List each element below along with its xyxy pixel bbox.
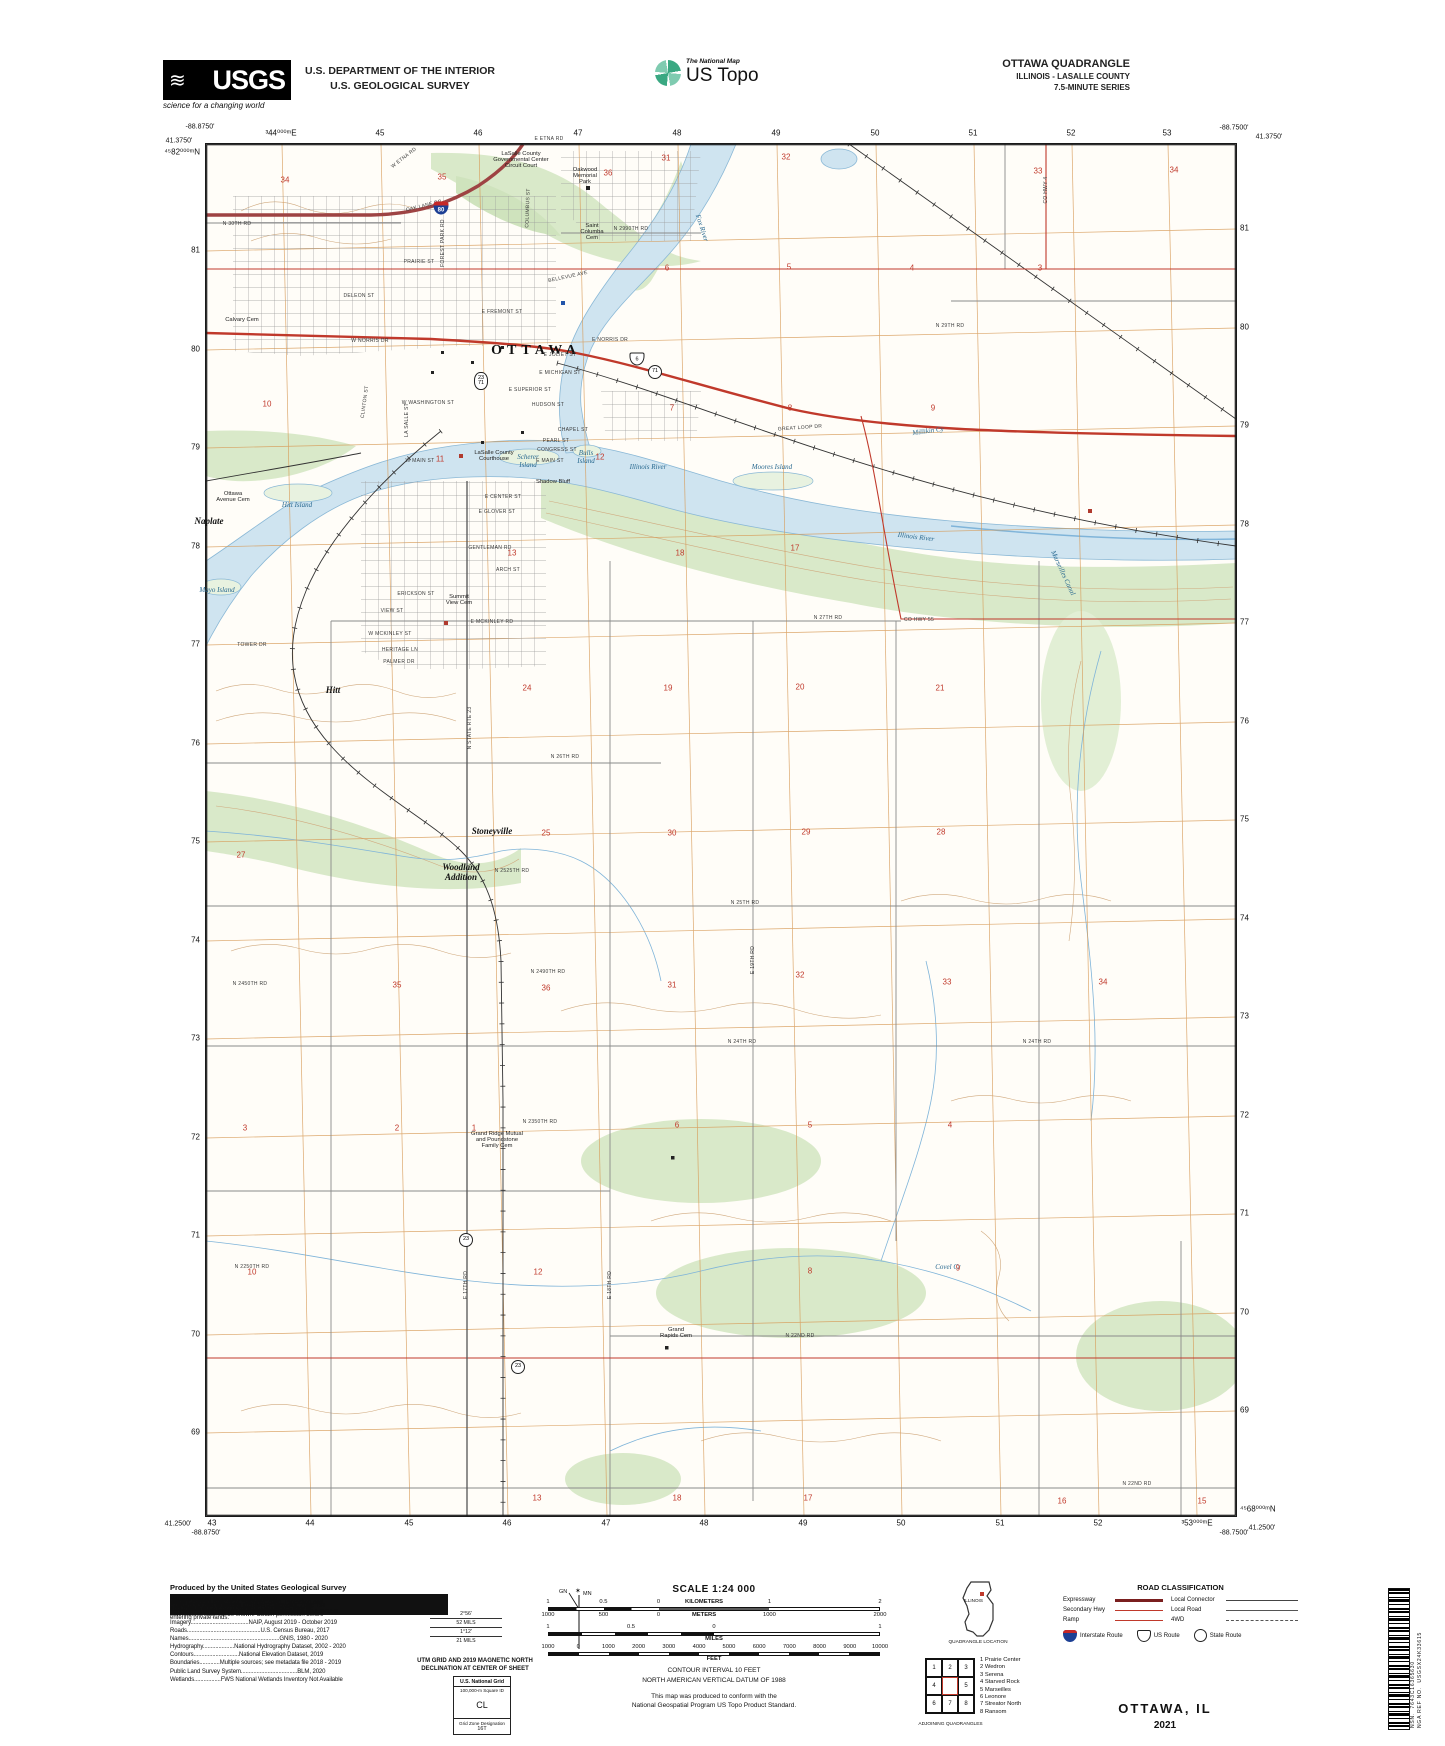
usgs-tagline: science for a changing world bbox=[163, 101, 313, 110]
illinois-outline: ILLINOIS bbox=[956, 1580, 1000, 1638]
feet-label: FEET bbox=[548, 1656, 880, 1664]
map-canvas[interactable] bbox=[205, 143, 1237, 1517]
adjoining-cell: 8 bbox=[958, 1695, 974, 1713]
credits-source-line: Imagery.................................… bbox=[170, 1619, 448, 1627]
scale-title: SCALE 1:24 000 bbox=[548, 1584, 880, 1595]
declination-value: 1°12' bbox=[430, 1627, 502, 1636]
grid-easting-top: 48 bbox=[673, 129, 682, 138]
adjoining-quadrangle-grid: 12345678 bbox=[925, 1658, 975, 1714]
grid-easting-bottom: 51 bbox=[996, 1519, 1005, 1528]
grid-northing-left: 73 bbox=[191, 1034, 200, 1043]
grid-easting-top: 47 bbox=[574, 129, 583, 138]
credits-source-line: Hydrography....................National … bbox=[170, 1643, 448, 1651]
scale-tick: 1000 bbox=[602, 1644, 615, 1650]
declination-value: 21 MILS bbox=[430, 1636, 502, 1645]
grid-northing-left: ⁴⁵82⁰⁰⁰ᵐN bbox=[164, 148, 200, 157]
declination-table: 2°56'52 MILS1°12'21 MILS bbox=[430, 1610, 502, 1645]
quadrangle-location: ILLINOIS QUADRANGLE LOCATION bbox=[933, 1580, 1023, 1645]
grid-easting-top: 52 bbox=[1067, 129, 1076, 138]
scale-tick: 0.5 bbox=[599, 1599, 607, 1605]
grid-northing-left: 79 bbox=[191, 443, 200, 452]
sheet-title-block: OTTAWA, IL 2021 bbox=[1090, 1701, 1240, 1731]
scale-tick: 0.5 bbox=[627, 1624, 635, 1630]
scale-tick: 6000 bbox=[753, 1644, 766, 1650]
ustopo-label: US Topo bbox=[686, 65, 759, 87]
scale-tick: 1000 bbox=[542, 1644, 555, 1650]
adjoining-cell: 3 bbox=[958, 1659, 974, 1677]
corner-coordinate: 41.2500' bbox=[165, 1521, 192, 1528]
grid-northing-right: 75 bbox=[1240, 815, 1249, 824]
barcode-icon bbox=[1388, 1588, 1410, 1730]
local-connector-line-sample bbox=[1226, 1600, 1298, 1601]
usng-square-id: CL bbox=[454, 1694, 510, 1718]
ustopo-icon bbox=[655, 60, 681, 86]
corner-coordinate: -88.8750' bbox=[186, 124, 215, 131]
legend-us-route: US Route bbox=[1154, 1633, 1180, 1639]
quad-location-marker bbox=[980, 1592, 984, 1596]
scale-tick: 1 bbox=[546, 1624, 549, 1630]
adjoining-name: 4 Starved Rock bbox=[980, 1679, 1070, 1686]
conformance-line1: This map was produced to conform with th… bbox=[548, 1692, 880, 1701]
scale-unit-label: METERS bbox=[692, 1612, 716, 1618]
credits-source-line: Wetlands.................FWS National We… bbox=[170, 1676, 448, 1684]
adjoining-cell: 4 bbox=[926, 1677, 942, 1695]
declination-caption-line2: DECLINATION AT CENTER OF SHEET bbox=[375, 1665, 575, 1673]
ramp-line-sample bbox=[1115, 1620, 1163, 1621]
scale-tick: 2 bbox=[878, 1599, 881, 1605]
grid-northing-left: 69 bbox=[191, 1428, 200, 1437]
grid-easting-bottom: 48 bbox=[700, 1519, 709, 1528]
nsn-text: NSN. 7643C16365630 bbox=[1410, 1588, 1416, 1728]
grid-northing-left: 72 bbox=[191, 1133, 200, 1142]
grid-northing-right: 72 bbox=[1240, 1111, 1249, 1120]
grid-northing-right: 81 bbox=[1240, 224, 1249, 233]
sheet-name: OTTAWA, IL bbox=[1090, 1701, 1240, 1716]
scale-tick: 1000 bbox=[542, 1612, 555, 1618]
scale-tick: 500 bbox=[599, 1612, 609, 1618]
usng-box: U.S. National Grid 100,000-m Square ID C… bbox=[453, 1676, 511, 1735]
scale-tick: 4000 bbox=[693, 1644, 706, 1650]
adjoining-name: 7 Streator North bbox=[980, 1701, 1070, 1708]
scale-tick: 1 bbox=[546, 1599, 549, 1605]
scale-tick: 9000 bbox=[843, 1644, 856, 1650]
local-road-line-sample bbox=[1226, 1610, 1298, 1611]
sheet-year: 2021 bbox=[1090, 1720, 1240, 1731]
contour-note: CONTOUR INTERVAL 10 FEET NORTH AMERICAN … bbox=[548, 1666, 880, 1686]
adjoining-name: 1 Prairie Center bbox=[980, 1657, 1070, 1664]
scale-tick: 0 bbox=[577, 1644, 580, 1650]
adjoining-cell: 6 bbox=[926, 1695, 942, 1713]
credits-source-line: Roads...................................… bbox=[170, 1627, 448, 1635]
scale-tick: 5000 bbox=[722, 1644, 735, 1650]
grid-northing-right: 77 bbox=[1240, 618, 1249, 627]
scale-tick: 0 bbox=[657, 1599, 660, 1605]
grid-northing-left: 80 bbox=[191, 345, 200, 354]
quadrangle-location-caption: QUADRANGLE LOCATION bbox=[933, 1640, 1023, 1645]
usng-square-id-label: 100,000-m Square ID bbox=[454, 1687, 510, 1694]
ustopo-logo: The National Map US Topo bbox=[655, 58, 759, 87]
grid-easting-bottom: 50 bbox=[897, 1519, 906, 1528]
credits-title: Produced by the United States Geological… bbox=[170, 1583, 448, 1592]
grid-easting-bottom: 46 bbox=[503, 1519, 512, 1528]
secondary-hwy-line-sample bbox=[1115, 1610, 1163, 1611]
grid-easting-bottom: 47 bbox=[602, 1519, 611, 1528]
grid-easting-top: 50 bbox=[871, 129, 880, 138]
vertical-datum: NORTH AMERICAN VERTICAL DATUM OF 1988 bbox=[548, 1676, 880, 1686]
map-label: E ETNA RD bbox=[534, 136, 563, 142]
grid-northing-right: 76 bbox=[1240, 717, 1249, 726]
km-ticks: 10.5012KILOMETERS bbox=[548, 1599, 880, 1607]
scale-block: SCALE 1:24 000 10.5012KILOMETERS 1000500… bbox=[548, 1584, 880, 1664]
grid-northing-right: 73 bbox=[1240, 1012, 1249, 1021]
legend-local-connector: Local Connector bbox=[1171, 1597, 1226, 1603]
quadrangle-title-block: OTTAWA QUADRANGLE ILLINOIS - LASALLE COU… bbox=[830, 58, 1130, 92]
corner-coordinate: -88.7500' bbox=[1220, 1530, 1249, 1537]
fourwd-line-sample bbox=[1226, 1620, 1298, 1621]
grid-northing-right: 80 bbox=[1240, 323, 1249, 332]
legend-local-road: Local Road bbox=[1171, 1607, 1226, 1613]
grid-easting-bottom: 45 bbox=[405, 1519, 414, 1528]
grid-easting-top: 49 bbox=[772, 129, 781, 138]
grid-northing-right: 69 bbox=[1240, 1406, 1249, 1415]
grid-northing-right: 79 bbox=[1240, 421, 1249, 430]
scale-tick: 0 bbox=[657, 1612, 660, 1618]
grid-easting-top: 53 bbox=[1163, 129, 1172, 138]
quadrangle-name: OTTAWA QUADRANGLE bbox=[830, 58, 1130, 70]
illinois-label: ILLINOIS bbox=[964, 1598, 983, 1603]
adjoining-name: 5 Marseilles bbox=[980, 1687, 1070, 1694]
adjoining-name: 2 Wedron bbox=[980, 1664, 1070, 1671]
legend-state-route: State Route bbox=[1210, 1633, 1242, 1639]
adjoining-cell: 7 bbox=[942, 1695, 958, 1713]
grid-northing-right: 78 bbox=[1240, 520, 1249, 529]
department-block: U.S. DEPARTMENT OF THE INTERIOR U.S. GEO… bbox=[255, 64, 545, 93]
road-classification: ROAD CLASSIFICATION Expressway Local Con… bbox=[1063, 1583, 1298, 1642]
interstate-shield-icon bbox=[1063, 1630, 1077, 1642]
grid-easting-bottom: 43 bbox=[208, 1519, 217, 1528]
quadrangle-state-county: ILLINOIS - LASALLE COUNTY bbox=[830, 72, 1130, 81]
declination-caption: UTM GRID AND 2019 MAGNETIC NORTH DECLINA… bbox=[375, 1657, 575, 1674]
adjoining-name: 8 Ransom bbox=[980, 1709, 1070, 1716]
adjoining-caption: ADJOINING QUADRANGLES bbox=[893, 1722, 1008, 1727]
grid-northing-left: 76 bbox=[191, 739, 200, 748]
corner-coordinate: 41.3750' bbox=[166, 138, 193, 145]
grid-easting-bottom: 52 bbox=[1094, 1519, 1103, 1528]
scale-unit-label: KILOMETERS bbox=[685, 1599, 723, 1605]
scale-tick: 10000 bbox=[872, 1644, 888, 1650]
grid-northing-left: 78 bbox=[191, 542, 200, 551]
credits-source-line: Names...................................… bbox=[170, 1635, 448, 1643]
corner-coordinate: -88.7500' bbox=[1220, 125, 1249, 132]
grid-northing-left: 74 bbox=[191, 936, 200, 945]
grid-northing-right: 71 bbox=[1240, 1209, 1249, 1218]
grid-easting-bottom: 44 bbox=[306, 1519, 315, 1528]
quadrangle-series: 7.5-MINUTE SERIES bbox=[830, 83, 1130, 92]
road-classification-title: ROAD CLASSIFICATION bbox=[1063, 1583, 1298, 1592]
contour-interval: CONTOUR INTERVAL 10 FEET bbox=[548, 1666, 880, 1676]
grid-easting-bottom: 49 bbox=[799, 1519, 808, 1528]
department-line1: U.S. DEPARTMENT OF THE INTERIOR bbox=[255, 64, 545, 79]
legend-interstate-route: Interstate Route bbox=[1080, 1633, 1123, 1639]
scale-tick: 2000 bbox=[632, 1644, 645, 1650]
adjoining-name: 3 Serena bbox=[980, 1672, 1070, 1679]
declination-value: 2°56' bbox=[430, 1610, 502, 1618]
adjoining-name: 6 Leonore bbox=[980, 1694, 1070, 1701]
nga-ref-text: NGA REF NO. USGSX24K33615 bbox=[1417, 1588, 1423, 1728]
scale-tick: 2000 bbox=[874, 1612, 887, 1618]
us-topo-map-sheet: ≋ USGS science for a changing world U.S.… bbox=[0, 0, 1445, 1746]
us-route-shield-icon bbox=[1137, 1630, 1151, 1642]
grid-northing-left: 75 bbox=[191, 837, 200, 846]
state-route-shield-icon bbox=[1194, 1629, 1207, 1642]
national-map-label: The National Map bbox=[686, 58, 759, 65]
usng-zone: 16T bbox=[454, 1726, 510, 1734]
scale-tick: 0 bbox=[712, 1624, 715, 1630]
adjoining-cell: 1 bbox=[926, 1659, 942, 1677]
corner-coordinate: 41.2500' bbox=[1249, 1525, 1276, 1532]
scale-tick: 1 bbox=[878, 1624, 881, 1630]
department-line2: U.S. GEOLOGICAL SURVEY bbox=[255, 79, 545, 94]
adjoining-cell: 2 bbox=[942, 1659, 958, 1677]
corner-coordinate: 41.3750' bbox=[1256, 134, 1283, 141]
adjoining-quadrangle-names: 1 Prairie Center2 Wedron3 Serena4 Starve… bbox=[980, 1657, 1070, 1716]
grid-easting-top: ³44⁰⁰⁰ᵐE bbox=[265, 129, 296, 138]
feet-ticks: 1000010002000300040005000600070008000900… bbox=[548, 1644, 880, 1652]
grid-easting-bottom: ³53⁰⁰⁰ᵐE bbox=[1181, 1519, 1212, 1528]
usng-title: U.S. National Grid bbox=[454, 1677, 510, 1687]
declination-caption-line1: UTM GRID AND 2019 MAGNETIC NORTH bbox=[375, 1657, 575, 1665]
expressway-line-sample bbox=[1115, 1599, 1163, 1602]
meters-ticks: 1000500010002000METERS bbox=[548, 1612, 880, 1620]
usng-zone-label: Grid Zone Designation bbox=[454, 1718, 510, 1726]
grid-northing-left: 70 bbox=[191, 1330, 200, 1339]
corner-coordinate: -88.8750' bbox=[192, 1530, 221, 1537]
grid-easting-top: 46 bbox=[474, 129, 483, 138]
miles-ticks: 10.501 bbox=[548, 1624, 880, 1632]
grid-easting-top: 45 bbox=[376, 129, 385, 138]
grid-northing-left: 81 bbox=[191, 246, 200, 255]
legend-expressway: Expressway bbox=[1063, 1597, 1115, 1603]
scale-tick: 1000 bbox=[763, 1612, 776, 1618]
km-meters-bar bbox=[548, 1607, 880, 1611]
grid-northing-left: 71 bbox=[191, 1231, 200, 1240]
adjoining-cell: 5 bbox=[958, 1677, 974, 1695]
scale-tick: 3000 bbox=[662, 1644, 675, 1650]
legend-secondary-hwy: Secondary Hwy bbox=[1063, 1607, 1115, 1613]
legend-ramp: Ramp bbox=[1063, 1617, 1115, 1623]
conformance-line2: National Geospatial Program US Topo Prod… bbox=[548, 1701, 880, 1710]
declination-value: 52 MILS bbox=[430, 1618, 502, 1627]
grid-easting-top: 51 bbox=[969, 129, 978, 138]
map-artwork bbox=[206, 144, 1236, 1516]
conformance-note: This map was produced to conform with th… bbox=[548, 1692, 880, 1711]
usgs-wave-icon: ≋ bbox=[169, 68, 184, 93]
grid-northing-right: ⁴⁵68⁰⁰⁰ᵐN bbox=[1240, 1505, 1276, 1514]
miles-label: MILES bbox=[548, 1636, 880, 1644]
grid-northing-left: 77 bbox=[191, 640, 200, 649]
scale-tick: 1 bbox=[768, 1599, 771, 1605]
scale-tick: 7000 bbox=[783, 1644, 796, 1650]
barcode-block: NSN. 7643C16365630 NGA REF NO. USGSX24K3… bbox=[1388, 1588, 1428, 1733]
legend-4wd: 4WD bbox=[1171, 1617, 1226, 1623]
scale-tick: 8000 bbox=[813, 1644, 826, 1650]
grid-northing-right: 70 bbox=[1240, 1308, 1249, 1317]
grid-northing-right: 74 bbox=[1240, 914, 1249, 923]
adjoining-cell bbox=[942, 1677, 958, 1695]
